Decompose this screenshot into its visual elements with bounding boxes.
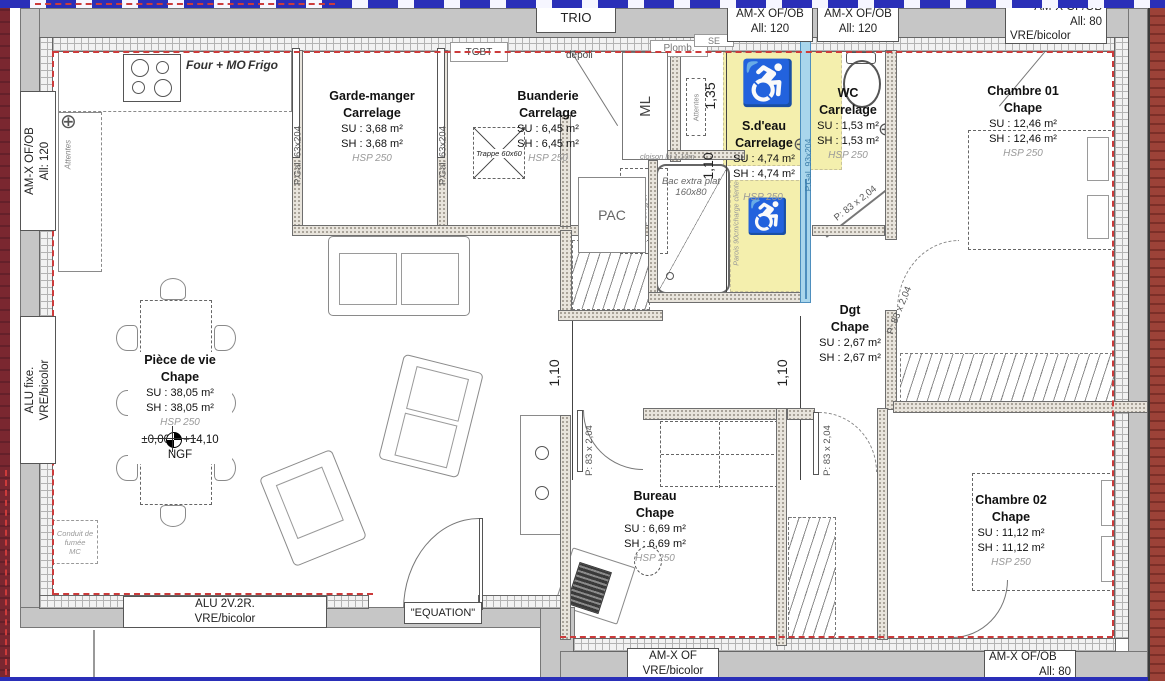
room-su: SU : 6,69 m² xyxy=(605,522,705,537)
window-label-amx-80-bottom: AM-X OF/OB All: 80 xyxy=(984,650,1076,680)
wall xyxy=(643,408,783,420)
room-label-bureau: Bureau Chape SU : 6,69 m² SH : 6,69 m² H… xyxy=(605,488,705,566)
door-label-p83-bureau: P: 83 x 2,04 xyxy=(584,403,595,498)
entry-glass-label: dépoli xyxy=(566,50,593,61)
wall xyxy=(670,50,681,162)
chair xyxy=(160,278,186,300)
sofa xyxy=(378,354,484,479)
terrace-line xyxy=(93,630,95,681)
bureau-door-leaf xyxy=(577,410,583,472)
equipment-text: Conduit de fumée xyxy=(53,529,97,547)
room-label-chambre02: Chambre 02 Chape SU : 11,12 m² SH : 11,1… xyxy=(952,492,1070,570)
equipment-text: Attentes xyxy=(692,93,701,121)
room-floor: Carrelage xyxy=(493,105,603,122)
room-name: Buanderie xyxy=(493,88,603,105)
room-label-sdeau: S.d'eau Carrelage SU : 4,74 m² SH : 4,74… xyxy=(722,118,806,181)
window-label-text: ALU 2V.2R. xyxy=(195,597,255,612)
room-hsp: HSP 250 xyxy=(128,416,232,430)
wall xyxy=(1128,8,1148,680)
room-hsp: HSP 250 xyxy=(730,191,796,205)
room-su: SU : 6,45 m² xyxy=(493,122,603,137)
frame-top-red-dash xyxy=(35,3,335,5)
sofa xyxy=(328,236,470,316)
wheelchair-icon: ♿ xyxy=(746,200,788,234)
equation-door-leaf xyxy=(479,518,483,610)
closet-chambre01 xyxy=(900,353,1128,403)
room-label-sdeau-hsp: HSP 250 xyxy=(730,190,796,205)
room-su: SU : 38,05 m² xyxy=(128,386,232,401)
window-label-amx-of-bottom: AM-X OF VRE/bicolor xyxy=(627,648,719,680)
room-name: Chambre 02 xyxy=(952,492,1070,509)
pac-box: PAC xyxy=(578,177,646,253)
inner-red-dash xyxy=(53,593,373,595)
window-label-alu-2v2r: ALU 2V.2R. VRE/bicolor xyxy=(123,596,327,628)
window-label-text: All: 120 xyxy=(839,22,877,37)
armchair xyxy=(259,449,367,567)
room-hsp: HSP 250 xyxy=(605,552,705,566)
wall xyxy=(1114,37,1129,639)
ml-box: ML xyxy=(622,52,668,160)
room-sh: SH : 6,69 m² xyxy=(605,537,705,552)
room-label-buanderie: Buanderie Carrelage SU : 6,45 m² SH : 6,… xyxy=(493,88,603,166)
inner-red-dash xyxy=(560,636,1113,638)
room-su: SU : 2,67 m² xyxy=(810,336,890,351)
equipment-text: Attentes xyxy=(64,140,73,169)
dim-135: 1,35 xyxy=(702,76,718,116)
conduit-fumee-box: Conduit de fumée MC xyxy=(52,520,98,564)
equipment-text: MC xyxy=(69,547,81,556)
bed-line xyxy=(719,422,720,488)
wall xyxy=(648,292,805,303)
window-label-text: VRE/bicolor xyxy=(195,612,256,627)
room-name: Pièce de vie xyxy=(128,352,232,369)
room-hsp: HSP 250 xyxy=(962,147,1084,161)
room-label-dgt: Dgt Chape SU : 2,67 m² SH : 2,67 m² xyxy=(810,302,890,365)
room-floor: Chape xyxy=(605,505,705,522)
dim-110-hall-right: 1,10 xyxy=(774,353,790,393)
four-mo-label: Four + MO xyxy=(186,58,246,72)
window-label-text: AM-X OF/OB xyxy=(824,7,892,22)
frame-right-brick-strip xyxy=(1148,0,1165,681)
bed-bureau xyxy=(660,421,778,487)
window-label-text: AM-X OF/OB xyxy=(23,127,38,195)
wall xyxy=(893,401,1148,413)
wall xyxy=(478,595,568,609)
burner-icon xyxy=(131,59,149,77)
sofa-seat xyxy=(339,253,397,305)
chambre02-door-leaf xyxy=(813,412,819,475)
room-name: Garde-manger xyxy=(318,88,426,105)
room-su: SU : 3,68 m² xyxy=(318,122,426,137)
burner-icon xyxy=(132,81,145,94)
equipment-text: Four + MO xyxy=(186,58,246,72)
cloison-label: cloison ht 1,10m xyxy=(640,152,695,161)
window-label-text: AM-X OF/OB xyxy=(736,7,804,22)
floor-plan: TRIO AM-X OF/OB All: 120 AM-X OF/OB All:… xyxy=(0,0,1165,681)
equipment-text: 160x80 xyxy=(675,187,706,198)
pillow xyxy=(1087,137,1109,181)
window-label-text: All: 80 xyxy=(1070,15,1102,30)
closet-chambre02 xyxy=(788,517,836,640)
equipment-text: SE xyxy=(708,36,720,46)
sofa-seat xyxy=(394,413,457,469)
burner-icon xyxy=(156,61,169,74)
wall xyxy=(648,160,658,300)
frigo-label: Frigo xyxy=(248,58,278,72)
room-sh: SH : 2,67 m² xyxy=(810,351,890,366)
room-floor: Chape xyxy=(952,509,1070,526)
door-label-equation: "EQUATION" xyxy=(404,602,482,624)
door-label-text: P.Gal. 63x204 xyxy=(293,126,304,185)
equipment-text: Bac extra plat xyxy=(662,176,720,187)
door-label-text: P: 83 x 2,04 xyxy=(584,425,595,476)
room-hsp: HSP 250 xyxy=(808,149,888,163)
room-sh: SH : 3,68 m² xyxy=(318,137,426,152)
sofa-seat xyxy=(401,253,459,305)
door-label-pgal63: P.Gal. 63x204 xyxy=(293,106,304,206)
wall xyxy=(787,408,815,420)
window-label-text: VRE/bicolor xyxy=(38,360,53,421)
kitchen-attentes-label: Attentes xyxy=(64,115,73,195)
window-label-text: AM-X OF/OB xyxy=(985,650,1057,665)
window-label-left-amx: AM-X OF/OB All: 120 xyxy=(20,91,56,231)
equipment-text: cloison ht 1,10m xyxy=(640,152,695,161)
room-sh: SH : 38,05 m² xyxy=(128,401,232,416)
cooktop xyxy=(123,54,181,102)
window-label-left-alu-fixe: ALU fixe. VRE/bicolor xyxy=(20,316,56,464)
window-label-amx-120-b: AM-X OF/OB All: 120 xyxy=(817,2,899,42)
wheelchair-icon: ♿ xyxy=(740,62,795,106)
entry-glass-text: dépoli xyxy=(566,50,593,61)
room-floor: Chape xyxy=(810,319,890,336)
shower-drain-icon xyxy=(666,272,674,280)
parois-label: Parois 90cm/charge cliente xyxy=(734,169,741,279)
bed-line xyxy=(661,454,779,455)
dim-text: 1,10 xyxy=(546,359,562,386)
wall xyxy=(560,415,571,640)
room-su: SU : 1,53 m² xyxy=(808,119,888,134)
room-name: Bureau xyxy=(605,488,705,505)
room-name: Dgt xyxy=(810,302,890,319)
window-label-text: AM-X OF xyxy=(649,649,697,664)
door-label-text: "EQUATION" xyxy=(411,606,475,620)
dim-line xyxy=(800,316,801,480)
door-label-text: P: 83 x 2,04 xyxy=(832,184,879,224)
dim-text: 1,35 xyxy=(702,82,718,109)
level-marker-icon xyxy=(166,432,182,448)
room-hsp: HSP 250 xyxy=(952,556,1070,570)
sideboard-knob xyxy=(535,486,549,500)
frame-left-red-dash xyxy=(5,470,7,675)
window-label-amx-120-a: AM-X OF/OB All: 120 xyxy=(727,2,813,42)
dim-110-hall-left: 1,10 xyxy=(546,353,562,393)
room-sh: SH : 4,74 m² xyxy=(722,167,806,182)
room-name: S.d'eau xyxy=(722,118,806,135)
room-hsp: HSP 250 xyxy=(493,152,603,166)
equipment-text: Frigo xyxy=(248,58,278,72)
room-name: WC xyxy=(808,85,888,102)
dim-line xyxy=(572,316,573,480)
equipment-text: ML xyxy=(637,96,654,117)
room-name: Chambre 01 xyxy=(962,83,1084,100)
frame-bottom-blue-line xyxy=(0,677,1148,681)
room-sh: SH : 1,53 m² xyxy=(808,134,888,149)
chair xyxy=(160,505,186,527)
room-label-garde-manger: Garde-manger Carrelage SU : 3,68 m² SH :… xyxy=(318,88,426,166)
wall xyxy=(877,408,888,640)
level-marker-cross xyxy=(150,438,196,439)
wall xyxy=(776,408,787,646)
room-sh: SH : 12,46 m² xyxy=(962,132,1084,147)
door-label-text: P.Gal. 63x204 xyxy=(438,126,449,185)
shower-label: Bac extra plat 160x80 xyxy=(658,176,724,198)
door-label-pgal63: P.Gal. 63x204 xyxy=(438,106,449,206)
inner-red-dash xyxy=(1112,51,1114,636)
room-sh: SH : 6,45 m² xyxy=(493,137,603,152)
sideboard-knob xyxy=(535,446,549,460)
window-label-text: All: 120 xyxy=(751,22,789,37)
window-label-text: TRIO xyxy=(560,10,591,27)
room-floor: Carrelage xyxy=(808,102,888,119)
chair xyxy=(214,325,236,351)
pillow xyxy=(1087,195,1109,239)
window-label-text: ALU fixe. xyxy=(23,367,38,414)
room-floor: Chape xyxy=(128,369,232,386)
room-su: SU : 4,74 m² xyxy=(722,152,806,167)
room-label-piece-de-vie: Pièce de vie Chape SU : 38,05 m² SH : 38… xyxy=(128,352,232,464)
window-label-text: VRE/bicolor xyxy=(1006,29,1071,44)
armchair-seat xyxy=(276,467,344,540)
room-label-chambre01: Chambre 01 Chape SU : 12,46 m² SH : 12,4… xyxy=(962,83,1084,161)
room-su: SU : 11,12 m² xyxy=(952,526,1070,541)
room-floor: Carrelage xyxy=(722,135,806,152)
room-su: SU : 12,46 m² xyxy=(962,117,1084,132)
wall xyxy=(560,230,572,315)
door-label-text: P: 83 x 2,04 xyxy=(822,425,833,476)
burner-icon xyxy=(154,79,172,97)
level-marker-cross xyxy=(172,426,173,452)
room-floor: Chape xyxy=(962,100,1084,117)
room-sh: SH : 11,12 m² xyxy=(952,541,1070,556)
wall xyxy=(558,310,663,321)
room-label-wc: WC Carrelage SU : 1,53 m² SH : 1,53 m² H… xyxy=(808,85,888,163)
door-label-p83-chambre02: P: 83 x 2,04 xyxy=(822,403,833,498)
equipment-text: PAC xyxy=(598,207,626,223)
room-hsp: HSP 250 xyxy=(318,152,426,166)
chair xyxy=(116,325,138,351)
room-floor: Carrelage xyxy=(318,105,426,122)
toilet-tank xyxy=(846,52,876,64)
door-arc-equation xyxy=(403,518,479,610)
dim-text: 1,10 xyxy=(774,359,790,386)
window-label-text: All: 120 xyxy=(38,142,53,180)
sofa-seat xyxy=(406,366,469,422)
